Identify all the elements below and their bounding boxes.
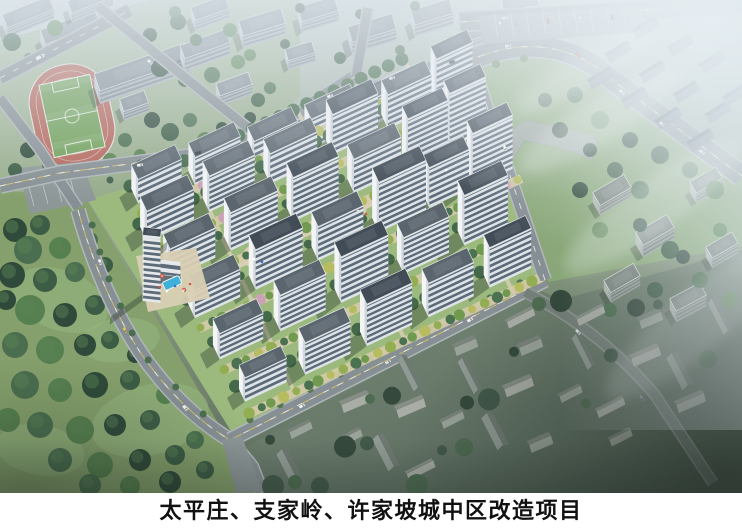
park-tree-highlight <box>17 238 32 253</box>
person-dot <box>253 258 256 261</box>
deck-tree-icon <box>196 324 204 332</box>
gable-shade <box>253 245 255 290</box>
person-dot <box>189 283 192 286</box>
person-dot <box>159 286 162 289</box>
person-dot <box>182 290 185 293</box>
park-tree-highlight <box>87 297 98 308</box>
gable-shade <box>278 290 280 331</box>
gable-shade <box>316 222 318 261</box>
person-dot <box>166 290 169 293</box>
deck-tree-icon <box>280 338 288 346</box>
deck-tree-icon <box>373 348 383 358</box>
park-tree-highlight <box>67 264 78 275</box>
village-tree-icon <box>383 387 401 405</box>
deck-tree-icon <box>339 364 349 374</box>
umbrella-top <box>161 275 162 276</box>
park-tree-highlight <box>18 298 35 315</box>
gable-shade <box>339 252 341 303</box>
deck-tree-icon <box>292 387 300 395</box>
project-rendering-page: 太平庄、支家岭、许家坡城中区改造项目 <box>0 0 742 529</box>
village-tree-icon <box>365 394 375 404</box>
park-tree-highlight <box>51 239 63 251</box>
deck-tree-icon <box>349 305 357 313</box>
deck-tree-icon <box>361 355 369 363</box>
park-tree-highlight <box>55 305 68 318</box>
gable-shade <box>229 208 231 251</box>
park-tree-highlight <box>35 270 48 283</box>
deck-tree-icon <box>385 342 396 353</box>
park-tree-highlight <box>5 220 18 233</box>
deck-tree-icon <box>350 358 361 369</box>
park-tree-highlight <box>32 217 43 228</box>
street-tree-icon <box>89 222 96 229</box>
deck-tree-icon <box>265 292 273 300</box>
shade-bottom <box>0 440 742 493</box>
park-tree-highlight <box>5 334 19 348</box>
aerial-rendering <box>0 0 742 493</box>
deck-tree-icon <box>312 375 323 386</box>
gable-shade <box>303 338 305 375</box>
rendering-scene <box>0 0 742 493</box>
project-title-text: 太平庄、支家岭、许家坡城中区改造项目 <box>159 500 582 522</box>
street-tree-icon <box>129 330 136 337</box>
park-tree-highlight <box>103 333 113 343</box>
park-tree-highlight <box>76 336 88 348</box>
person-dot <box>357 210 360 213</box>
street-tree-icon <box>105 276 112 283</box>
deck-tree-icon <box>304 380 314 390</box>
deck-tree-icon <box>288 333 298 343</box>
deck-tree-icon <box>327 371 335 379</box>
person-dot <box>261 261 264 264</box>
street-tree-icon <box>96 249 103 256</box>
deck-tree-icon <box>324 262 335 273</box>
project-caption: 太平庄、支家岭、许家坡城中区改造项目 <box>0 493 742 529</box>
person-dot <box>174 285 177 288</box>
park-tree-highlight <box>2 264 16 278</box>
